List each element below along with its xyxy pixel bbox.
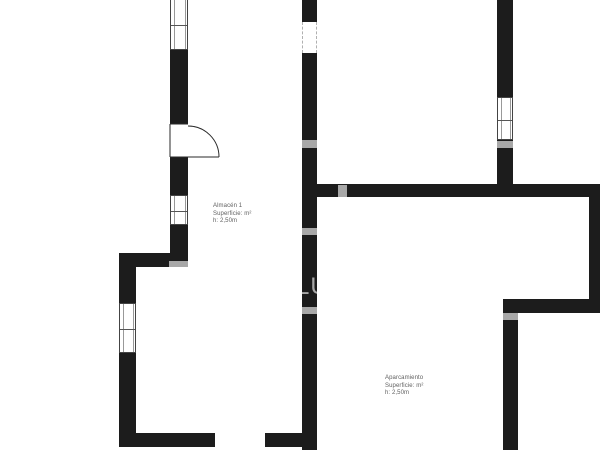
- wall-segment: [317, 184, 600, 197]
- room-height: h: 2,50m: [213, 218, 251, 226]
- room-name: Almacén 1: [213, 203, 251, 211]
- watermark-band: [302, 140, 317, 148]
- room-label-almacen: Almacén 1 Superficie: m² h: 2,50m: [213, 203, 251, 226]
- watermark-text: LU: [296, 275, 329, 299]
- window: [170, 195, 188, 225]
- wall-segment: [497, 0, 513, 97]
- room-label-aparcamiento: Aparcamiento Superficie: m² h: 2,50m: [385, 375, 423, 398]
- window-glass-line: [123, 304, 124, 352]
- wall-segment: [119, 433, 215, 447]
- watermark-band: [503, 313, 518, 320]
- wall-segment: [503, 313, 518, 450]
- window-divider: [120, 329, 135, 330]
- dashed-opening: [302, 22, 317, 53]
- door-arc: [188, 126, 219, 157]
- wall-segment: [119, 267, 136, 303]
- window: [497, 97, 513, 140]
- room-name: Aparcamiento: [385, 375, 423, 383]
- window-glass-line: [174, 196, 175, 224]
- wall-segment: [170, 157, 188, 195]
- wall-segment: [302, 53, 317, 450]
- room-height: h: 2,50m: [385, 390, 423, 398]
- watermark-band: [338, 185, 347, 197]
- window-glass-line: [501, 98, 502, 139]
- window-divider: [171, 25, 187, 26]
- window-divider: [171, 211, 187, 212]
- watermark-band: [497, 141, 513, 148]
- window: [119, 303, 136, 353]
- window-divider: [498, 120, 512, 121]
- window-glass-line: [133, 304, 134, 352]
- watermark-band: [302, 228, 317, 235]
- watermark-band: [302, 307, 317, 314]
- floorplan-canvas: Almacén 1 Superficie: m² h: 2,50m Aparca…: [0, 0, 600, 450]
- room-area: Superficie: m²: [385, 383, 423, 391]
- room-area: Superficie: m²: [213, 211, 251, 219]
- wall-segment: [302, 0, 317, 22]
- wall-segment: [170, 50, 188, 124]
- window-glass-line: [510, 98, 511, 139]
- wall-segment: [503, 299, 600, 313]
- window: [170, 0, 188, 50]
- wall-segment: [589, 184, 600, 313]
- watermark-band: [169, 261, 188, 267]
- window-glass-line: [185, 196, 186, 224]
